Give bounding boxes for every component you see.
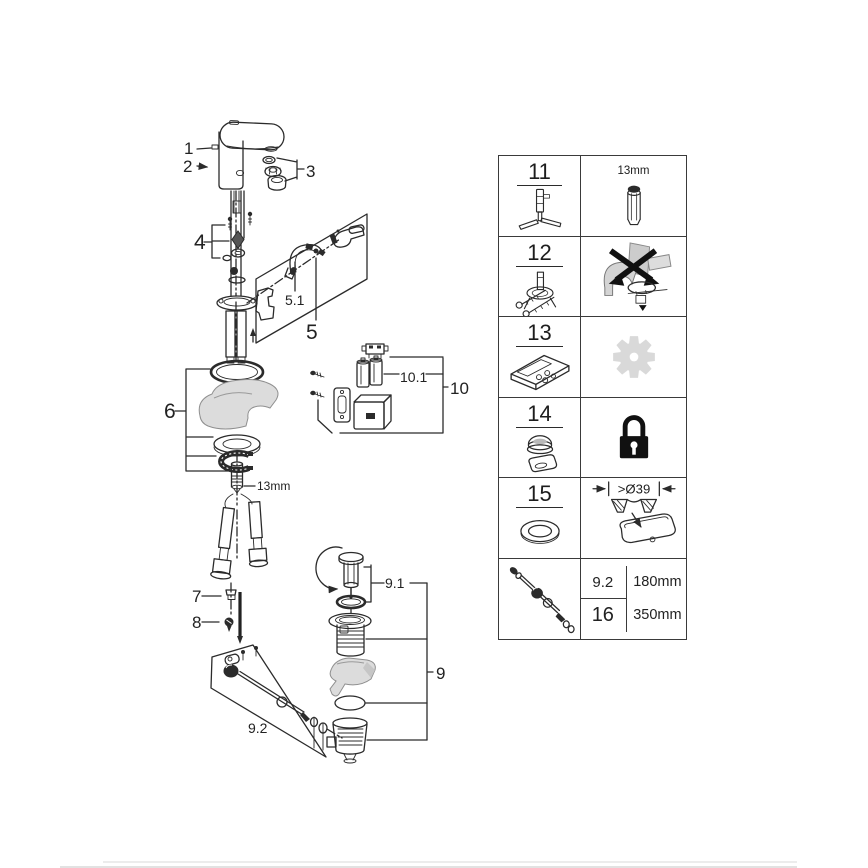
pin-part-1 [212, 145, 218, 149]
length-350mm: 350mm [633, 599, 686, 632]
ref-13: 13 [516, 321, 562, 347]
exploded-parts-diagram-page: 1 2 3 [0, 0, 868, 868]
linkage-unit-9-2: 9.2 [211, 645, 327, 757]
basin-min-diameter-icon: >Ø39 [587, 480, 681, 556]
battery-holder [334, 388, 350, 422]
part-8-screw: 8 [192, 613, 234, 632]
part-number-9: 9 [436, 664, 445, 683]
aerator-parts-3: 3 [263, 157, 315, 191]
parts-table-cell-13: 13 [499, 317, 581, 398]
ref-12: 12 [516, 241, 562, 267]
washer-icon [510, 512, 570, 554]
bottom-rule-2 [60, 866, 797, 868]
padlock-icon [611, 410, 657, 464]
valve-shank-assembly: 4 [194, 191, 274, 363]
bottom-rule-1 [103, 861, 797, 863]
socket-13mm-icon [617, 183, 651, 229]
ref-9-2: 9.2 [581, 566, 626, 600]
parts-table-cell-14: 14 [499, 398, 581, 479]
label-1: 1 [184, 139, 211, 158]
gear-icon [605, 328, 663, 386]
escutcheon-plate [199, 380, 278, 429]
mounting-group-6: 6 [164, 361, 278, 471]
parts-table: 11 13mm 12 [498, 155, 687, 640]
part-number-3: 3 [306, 162, 315, 181]
supply-hoses [210, 501, 267, 580]
rod-length-subtable: 9.2 16 180mm 350mm [581, 566, 686, 632]
battery-unit-10: 10.1 10 [310, 344, 469, 433]
part-number-7: 7 [192, 587, 201, 606]
part-number-4: 4 [194, 231, 206, 254]
parts-table-cell-basin-diameter: >Ø39 [581, 478, 686, 559]
exploded-diagram: 1 2 3 [0, 0, 868, 868]
length-180mm: 180mm [633, 566, 686, 599]
parts-table-cell-11: 11 [499, 156, 581, 237]
part-number-10: 10 [450, 379, 469, 398]
part-number-6: 6 [164, 400, 176, 423]
part-number-9-2: 9.2 [248, 720, 268, 736]
ref-11: 11 [517, 160, 562, 186]
part-number-5: 5 [306, 321, 318, 344]
part-number-5-1: 5.1 [285, 292, 305, 308]
part-number-2: 2 [183, 157, 192, 176]
installation-warning-icon [591, 241, 677, 311]
pull-rod-icon [504, 563, 576, 635]
solenoid-unit-5: 5.1 5 [256, 214, 367, 344]
part-number-1: 1 [184, 139, 193, 158]
parts-table-cell-padlock [581, 398, 686, 479]
cap-part-icon [514, 428, 566, 478]
remote-control-icon [507, 347, 573, 397]
parts-table-cell-rod-lengths: 9.2 16 180mm 350mm [581, 559, 686, 640]
stud-size-label: 13mm [257, 479, 290, 493]
parts-table-cell-13mm-socket: 13mm [581, 156, 686, 237]
parts-table-cell-gear [581, 317, 686, 398]
ref-15: 15 [516, 482, 562, 508]
part-number-10-1: 10.1 [400, 369, 427, 385]
faucet-body [212, 121, 285, 189]
parts-table-cell-15: 15 [499, 478, 581, 559]
parts-table-cell-12: 12 [499, 237, 581, 318]
ref-16: 16 [581, 599, 626, 632]
parts-table-cell-pull-rod [499, 559, 581, 640]
service-tool-icon [512, 186, 568, 236]
min-diameter-label: >Ø39 [617, 481, 650, 496]
label-2: 2 [183, 157, 207, 176]
parts-table-cell-installation-warning [581, 237, 686, 318]
part-number-8: 8 [192, 613, 201, 632]
part-7-nut: 7 [192, 587, 236, 606]
part-number-9-1: 9.1 [385, 575, 405, 591]
drain-assembly-9: 9.1 9 [316, 547, 445, 763]
mounting-clip [256, 288, 274, 320]
socket-size-label: 13mm [618, 165, 650, 177]
mounting-tool-icon [509, 267, 571, 317]
ref-14: 14 [516, 402, 562, 428]
